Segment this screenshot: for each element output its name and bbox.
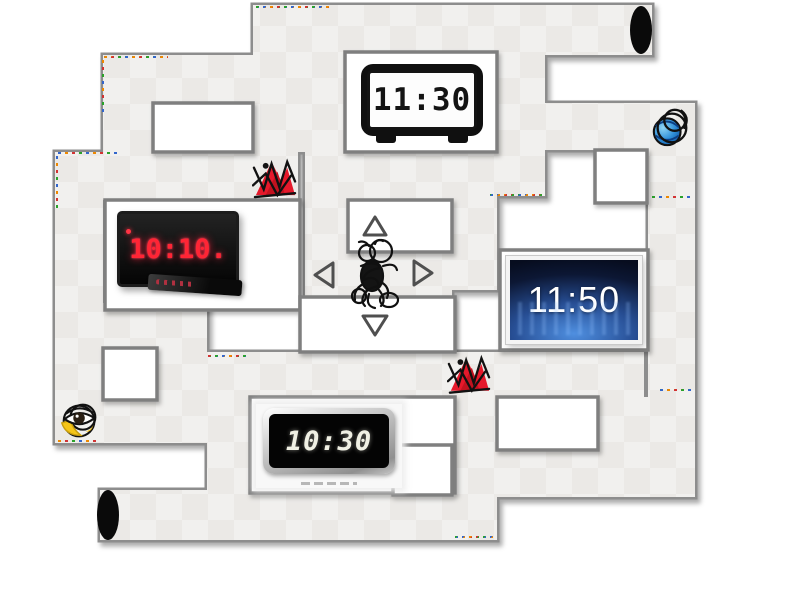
left-arrow-icon	[311, 259, 337, 291]
clock-led-time: 10:10.	[129, 234, 227, 265]
fly-player-icon	[344, 238, 406, 314]
eye-icon	[57, 399, 103, 443]
maze-room	[497, 397, 598, 450]
red-spider-icon	[447, 351, 491, 398]
tunnel-opening-bottom-left	[97, 490, 119, 540]
led-indicator-dot	[126, 229, 131, 234]
clock-screen[interactable]: 11:50	[506, 256, 642, 344]
screen-glow-streaks	[518, 302, 631, 336]
right-arrow-icon	[410, 257, 436, 289]
maze-room	[153, 103, 253, 152]
maze-room	[595, 150, 647, 203]
maze-room	[103, 348, 157, 400]
right-arrow-button[interactable]	[410, 257, 436, 289]
blue-ball-icon	[650, 104, 692, 150]
clock-wall-watermark	[301, 482, 357, 485]
clock-alarm-face: 11:30	[367, 70, 477, 130]
up-arrow-icon	[360, 213, 390, 239]
red-spider-icon	[252, 156, 297, 201]
down-arrow-button[interactable]	[359, 311, 391, 339]
up-arrow-button[interactable]	[360, 213, 390, 239]
clock-alarm-time: 11:30	[373, 82, 471, 118]
clock-wall-time: 10:30	[286, 426, 372, 457]
tunnel-opening-top-right	[630, 6, 652, 54]
down-arrow-icon	[359, 311, 391, 339]
clock-maze-game: 11:30 10:10. 11:50 10:30	[0, 0, 800, 600]
left-arrow-button[interactable]	[311, 259, 337, 291]
clock-alarm[interactable]: 11:30	[361, 64, 483, 136]
clock-wall-photo: 10:30	[256, 404, 402, 488]
clock-wall[interactable]: 10:30	[263, 408, 395, 474]
clock-wall-face: 10:30	[269, 414, 389, 468]
